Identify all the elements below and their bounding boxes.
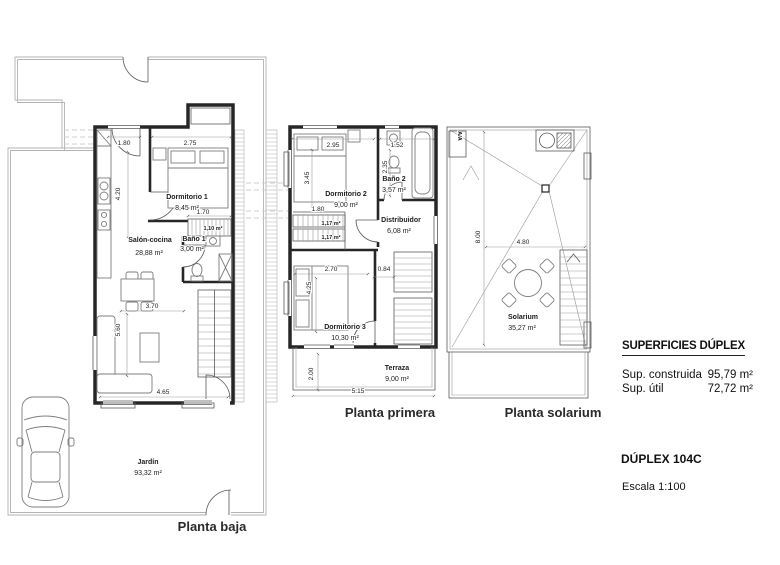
ac-unit-label: A/A (456, 131, 462, 141)
plan-title-baja: Planta baja (178, 519, 247, 534)
scale-label: Escala 1:100 (622, 481, 686, 493)
surface-label-util: Sup. útil (622, 383, 664, 395)
surfaces-table: Sup. construida 95,79 m² Sup. útil 72,72… (622, 369, 753, 397)
room-label-dormitorio2: Dormitorio 2 (325, 191, 367, 198)
unit-name: DÚPLEX 104C (621, 452, 702, 466)
dim-dorm3-height: 4.25 (306, 281, 313, 294)
room-area-bano2: 3,57 m² (382, 187, 406, 194)
room-area-dormitorio3: 10,30 m² (331, 335, 359, 342)
patio-table-icon (501, 258, 555, 308)
surface-row-util: Sup. útil 72,72 m² (622, 383, 753, 395)
plan-title-primera: Planta primera (345, 405, 436, 420)
staircase-solarium (560, 250, 587, 345)
stair-area-a-label: 1,17 m² (322, 220, 341, 227)
gate-bottom (206, 490, 231, 515)
party-wall-hatch (235, 130, 277, 402)
dim-salon-height: 5.60 (115, 323, 122, 336)
dim-stair-width-p1: 1.80 (312, 206, 325, 213)
dim-door-width: 1.80 (118, 140, 131, 147)
dim-kitchen-depth: 4.20 (115, 187, 122, 200)
room-label-solarium: Solarium (508, 314, 538, 321)
surfaces-title: SUPERFICIES DÚPLEX (622, 340, 745, 356)
dim-dorm3-width: 2.70 (325, 266, 338, 273)
room-area-jardin: 93,32 m² (134, 470, 162, 477)
room-area-solarium: 35,27 m² (508, 325, 536, 332)
dim-solarium-depth: 8.00 (475, 230, 482, 243)
dim-bano2-width: 1.52 (391, 142, 404, 149)
surface-value-util: 72,72 m² (708, 383, 753, 395)
dim-solarium-width: 4.80 (517, 239, 530, 246)
dim-dorm1-width: 2.75 (184, 140, 197, 147)
solar-collector-icon (536, 130, 574, 151)
stair-area-b-label: 1,17 m² (322, 234, 341, 241)
gate-top (123, 57, 148, 82)
room-label-bano1: Baño 1 (182, 236, 205, 243)
room-area-terraza: 9,00 m² (385, 376, 409, 383)
room-label-salon: Salón-cocina (128, 237, 172, 244)
floorplan-sheet: 1.80 2.75 4.20 1.70 3.70 5.60 4.65 Dormi… (0, 0, 780, 565)
dim-salon-width: 3.70 (146, 303, 159, 310)
dim-terraza-height: 2.00 (308, 367, 315, 380)
dim-bano2-height: 2.35 (382, 160, 389, 173)
plan-title-solarium: Planta solarium (505, 405, 602, 420)
bed3-icon (294, 266, 348, 330)
room-label-jardin: Jardín (137, 459, 158, 466)
kitchen-fixtures (97, 130, 111, 278)
car-icon (17, 397, 74, 507)
stair-area-label: 1,10 m² (204, 225, 223, 232)
dim-facade-p1: 5.15 (352, 388, 365, 395)
dim-dorm2-width: 2.95 (327, 142, 340, 149)
room-area-distribuidor: 6,08 m² (387, 228, 411, 235)
plan-planta-primera: 2.95 1.52 3.45 2.35 1.80 2.70 0.84 4.25 … (284, 123, 440, 420)
plan-planta-baja: 1.80 2.75 4.20 1.70 3.70 5.60 4.65 Dormi… (8, 57, 288, 534)
drain-icon (542, 185, 549, 192)
room-label-terraza: Terraza (385, 365, 409, 372)
dim-hall-width: 0.84 (378, 266, 391, 273)
room-label-distribuidor: Distribuidor (381, 217, 421, 224)
lower-terrace-outline (449, 352, 588, 398)
room-area-bano1: 3,00 m² (180, 246, 204, 253)
plan-planta-solarium: A/A (447, 127, 601, 420)
surface-row-construida: Sup. construida 95,79 m² (622, 369, 753, 381)
dim-dorm2-height: 3.45 (304, 171, 311, 184)
room-label-dormitorio3: Dormitorio 3 (324, 324, 366, 331)
room-area-dormitorio1: 8,45 m² (175, 205, 199, 212)
room-label-dormitorio1: Dormitorio 1 (166, 194, 208, 201)
surface-value-construida: 95,79 m² (708, 369, 753, 381)
coffee-table-icon (140, 333, 159, 362)
room-label-bano2: Baño 2 (382, 176, 405, 183)
room-area-salon: 28,88 m² (135, 250, 163, 257)
surface-label-construida: Sup. construida (622, 369, 702, 381)
room-area-dormitorio2: 9,00 m² (334, 202, 358, 209)
dim-facade: 4.65 (157, 389, 170, 396)
